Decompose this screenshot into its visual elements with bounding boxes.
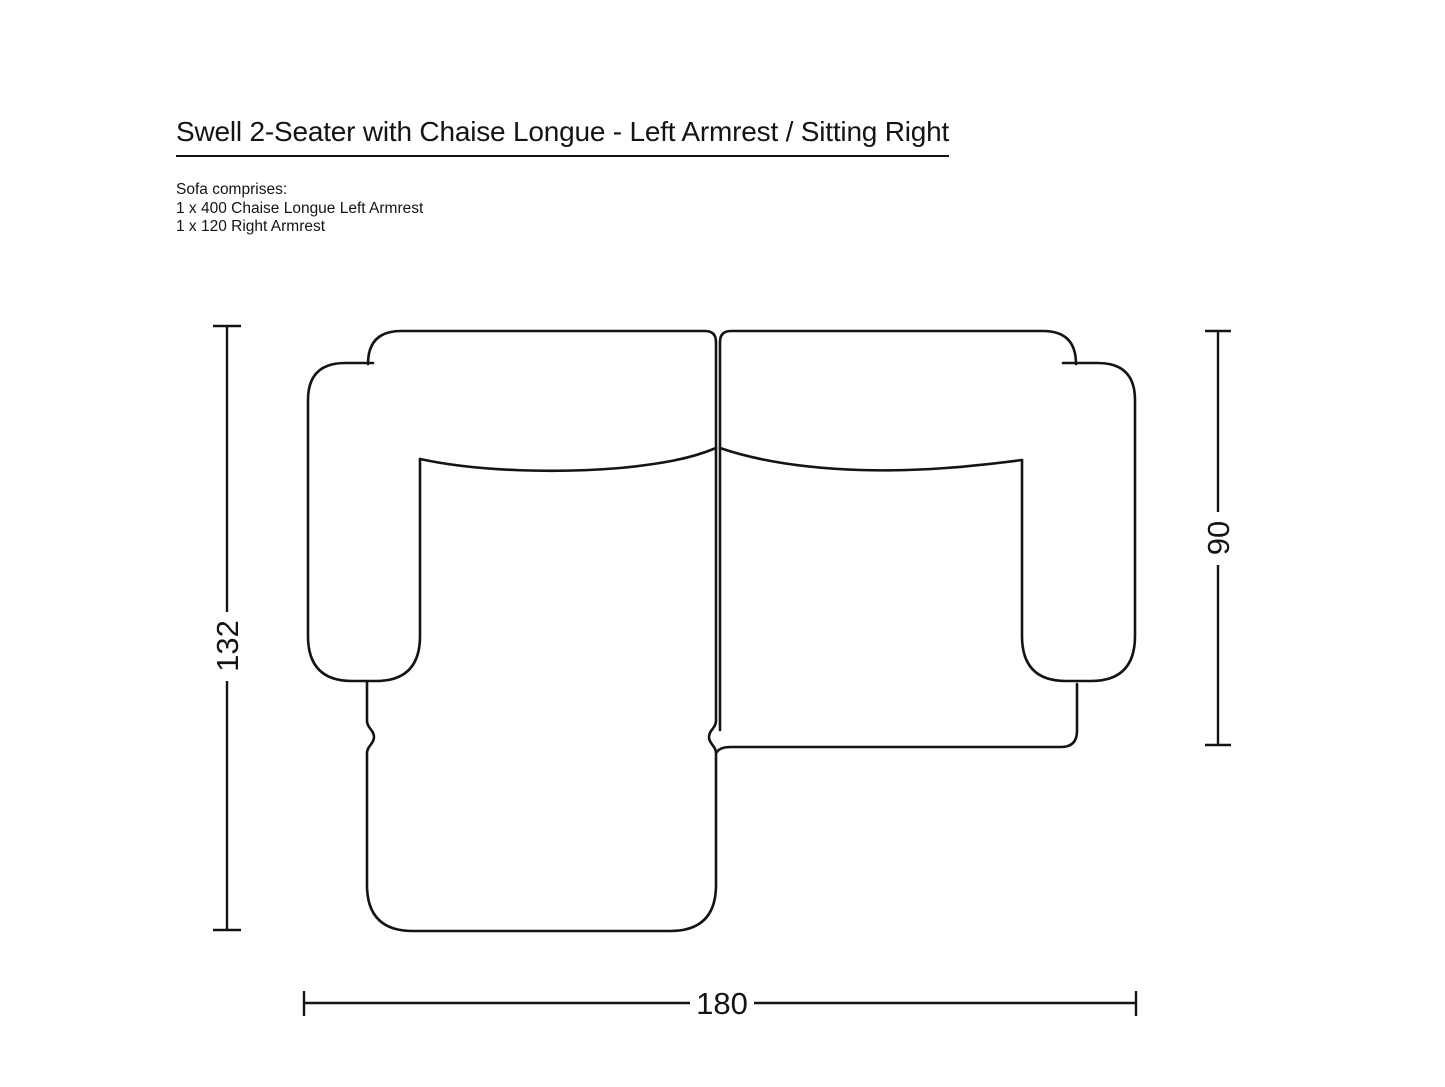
right-armrest-outline [1022, 363, 1135, 681]
left-armrest-outline [308, 363, 420, 681]
dimension-label-seat-depth: 90 [1201, 521, 1236, 555]
right-module-front-outline [717, 684, 1077, 752]
dimension-total-width: 180 [304, 986, 1136, 1021]
page-root: Swell 2-Seater with Chaise Longue - Left… [0, 0, 1445, 1087]
right-seat-module [717, 331, 1135, 752]
right-seat-cushion-line [720, 448, 1022, 470]
sofa-top-view-diagram: 132 90 180 [0, 0, 1445, 1087]
dimension-label-total-width: 180 [696, 986, 748, 1021]
left-seat-cushion-line [420, 448, 716, 471]
chaise-longue-module [308, 331, 716, 931]
dimension-seat-depth: 90 [1201, 331, 1236, 745]
dimension-label-total-depth: 132 [210, 620, 245, 672]
dimension-total-depth: 132 [210, 326, 245, 930]
